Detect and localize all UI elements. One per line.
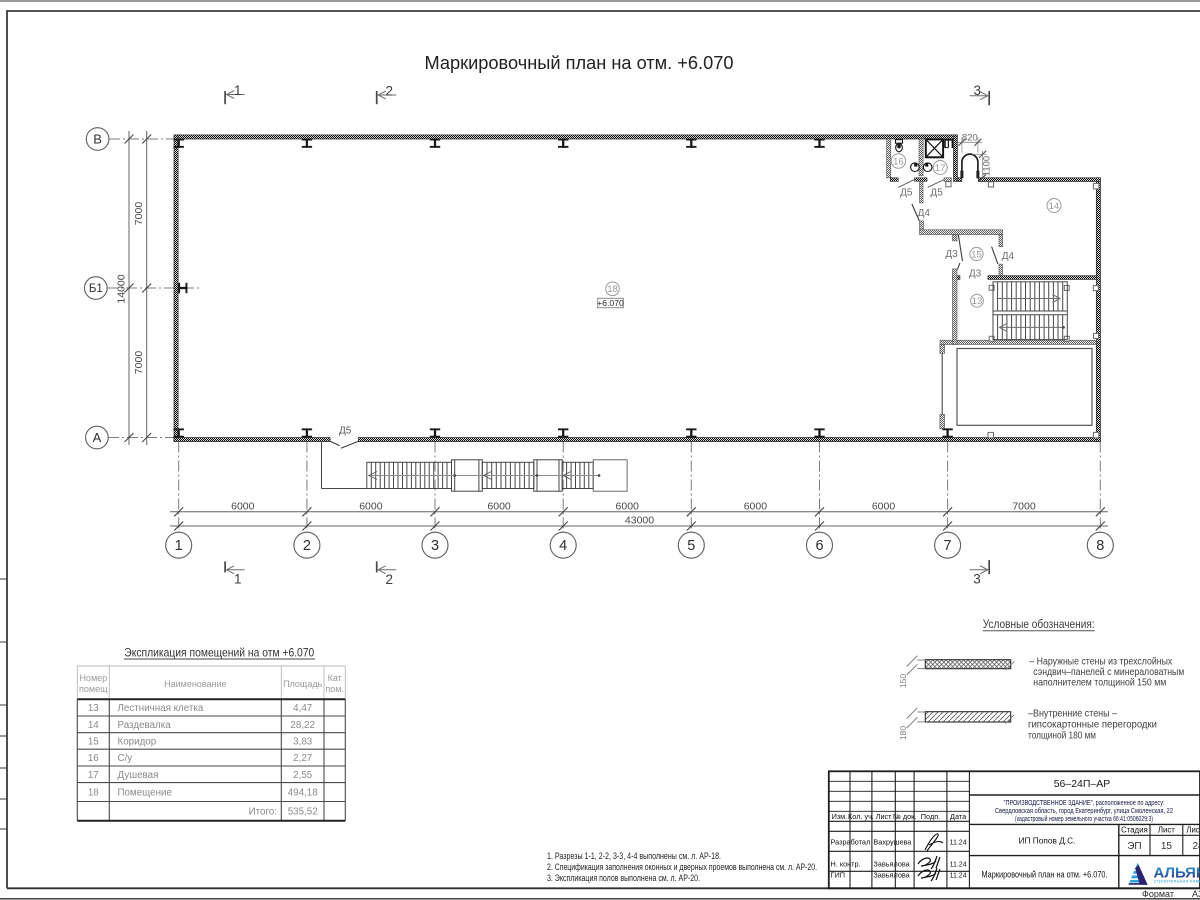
svg-text:Д4: Д4 — [918, 208, 931, 219]
svg-text:Условные обозначения:: Условные обозначения: — [983, 617, 1095, 631]
svg-text:7: 7 — [944, 538, 952, 554]
svg-text:7000: 7000 — [1012, 500, 1036, 512]
svg-text:(кадастровый номер земельного: (кадастровый номер земельного участка 66… — [1015, 815, 1153, 823]
svg-text:15: 15 — [88, 737, 99, 748]
svg-text:Душевая: Душевая — [118, 770, 159, 781]
svg-text:Дата: Дата — [950, 812, 967, 821]
svg-text:8: 8 — [1096, 538, 1104, 554]
svg-text:Итого:: Итого: — [249, 807, 277, 818]
svg-text:Д4: Д4 — [1002, 251, 1015, 262]
svg-text:16: 16 — [893, 156, 904, 167]
svg-text:Вахрушева: Вахрушева — [873, 838, 912, 847]
svg-text:3: 3 — [973, 572, 981, 587]
svg-text:7000: 7000 — [133, 202, 145, 226]
svg-text:помещ: помещ — [79, 684, 108, 694]
svg-text:В: В — [93, 132, 102, 147]
svg-text:13: 13 — [88, 703, 99, 714]
svg-text:толщиной 180 мм: толщиной 180 мм — [1028, 729, 1096, 741]
svg-text:16: 16 — [88, 753, 99, 764]
svg-text:6000: 6000 — [744, 500, 768, 512]
svg-text:6000: 6000 — [231, 500, 255, 512]
svg-text:17: 17 — [935, 163, 946, 174]
svg-text:7000: 7000 — [133, 351, 145, 375]
svg-text:Коридор: Коридор — [118, 737, 157, 748]
svg-text:2. Спецификация заполнения око: 2. Спецификация заполнения оконных и две… — [547, 862, 817, 872]
svg-text:Раздевалка: Раздевалка — [118, 720, 172, 731]
svg-text:+6.070: +6.070 — [597, 298, 624, 308]
svg-text:"ПРОИЗВОДСТВЕННОЕ ЗДАНИЕ", рас: "ПРОИЗВОДСТВЕННОЕ ЗДАНИЕ", расположенное… — [1004, 800, 1165, 807]
svg-text:Маркировочный план на отм. +6.: Маркировочный план на отм. +6.070 — [425, 52, 734, 73]
svg-text:15: 15 — [971, 249, 982, 260]
svg-text:Д5: Д5 — [900, 188, 913, 199]
svg-text:Д3: Д3 — [969, 269, 982, 280]
svg-text:3: 3 — [973, 83, 981, 98]
svg-text:494,18: 494,18 — [288, 788, 319, 799]
svg-text:6000: 6000 — [616, 500, 640, 512]
svg-text:6000: 6000 — [359, 500, 383, 512]
svg-text:11.24: 11.24 — [950, 873, 967, 880]
svg-text:6000: 6000 — [487, 500, 511, 512]
svg-text:1: 1 — [234, 572, 242, 587]
svg-text:Лист: Лист — [1158, 826, 1175, 835]
svg-text:56–24П–АР: 56–24П–АР — [1054, 778, 1111, 790]
svg-text:3: 3 — [431, 538, 439, 554]
svg-text:строительная компания: строительная компания — [1154, 880, 1200, 885]
svg-text:Формат: Формат — [1142, 889, 1174, 899]
svg-text:11.24: 11.24 — [950, 862, 967, 869]
svg-text:ГИП: ГИП — [831, 871, 845, 880]
svg-text:Свердловская область, город Ек: Свердловская область, город Екатеринбург… — [995, 807, 1173, 815]
svg-text:2,55: 2,55 — [293, 770, 313, 781]
svg-text:2: 2 — [303, 538, 311, 554]
svg-text:Завьялова: Завьялова — [873, 860, 910, 869]
svg-text:180: 180 — [898, 726, 908, 740]
svg-text:1. Разрезы 1-1, 2-2, 3-3, 4-4: 1. Разрезы 1-1, 2-2, 3-3, 4-4 выполнены … — [547, 851, 721, 861]
svg-text:Д5: Д5 — [339, 426, 352, 437]
svg-text:Д3: Д3 — [945, 249, 958, 260]
svg-text:ЭП: ЭП — [1127, 841, 1141, 852]
svg-text:17: 17 — [88, 770, 99, 781]
svg-text:Наименование: Наименование — [164, 679, 226, 689]
svg-text:Кат: Кат — [328, 673, 342, 683]
svg-text:А3: А3 — [1192, 889, 1200, 899]
svg-text:3,83: 3,83 — [293, 737, 313, 748]
svg-text:820: 820 — [962, 133, 978, 144]
svg-text:Разработал: Разработал — [831, 838, 871, 847]
svg-text:Завьялова: Завьялова — [873, 871, 910, 880]
svg-text:43000: 43000 — [625, 515, 654, 527]
svg-text:14: 14 — [1049, 201, 1060, 212]
svg-text:6: 6 — [815, 538, 823, 554]
svg-text:1100: 1100 — [981, 156, 992, 176]
svg-text:Д5: Д5 — [930, 188, 943, 199]
svg-text:18: 18 — [607, 284, 618, 295]
svg-text:5: 5 — [687, 538, 695, 554]
svg-text:18: 18 — [88, 788, 99, 799]
svg-text:28,22: 28,22 — [290, 720, 315, 731]
svg-text:13: 13 — [972, 296, 983, 307]
svg-text:3. Экспликация полов выполнена: 3. Экспликация полов выполнена см. л. АР… — [547, 873, 700, 883]
svg-text:С/у: С/у — [118, 753, 133, 764]
svg-text:№ док.: № док. — [893, 812, 916, 821]
svg-text:11.24: 11.24 — [950, 840, 967, 847]
svg-text:А: А — [93, 430, 102, 445]
svg-text:Номер: Номер — [79, 673, 107, 683]
svg-text:2: 2 — [386, 572, 394, 587]
svg-text:535,52: 535,52 — [288, 807, 318, 818]
svg-text:наполнителем толщиной 150 мм: наполнителем толщиной 150 мм — [1033, 676, 1166, 688]
svg-text:4: 4 — [559, 538, 567, 554]
svg-text:Помещение: Помещение — [118, 788, 173, 799]
svg-text:2: 2 — [386, 84, 394, 99]
svg-text:ИП Попов Д.С.: ИП Попов Д.С. — [1019, 836, 1076, 846]
svg-text:Б1: Б1 — [89, 283, 103, 295]
svg-text:Маркировочный план на отм. +6.: Маркировочный план на отм. +6.070. — [982, 870, 1108, 881]
svg-text:1: 1 — [175, 538, 183, 554]
svg-text:Стадия: Стадия — [1121, 826, 1148, 835]
svg-text:6000: 6000 — [872, 500, 896, 512]
svg-text:Изм.: Изм. — [832, 812, 848, 821]
svg-text:Н. контр.: Н. контр. — [831, 860, 861, 869]
svg-text:14000: 14000 — [115, 274, 127, 303]
svg-text:14: 14 — [88, 720, 99, 731]
svg-text:Подп.: Подп. — [921, 812, 940, 821]
svg-text:Экспликация помещений на отм +: Экспликация помещений на отм +6.070 — [124, 645, 314, 659]
svg-text:Лист: Лист — [876, 812, 893, 821]
svg-text:24: 24 — [1192, 841, 1200, 852]
svg-text:Площадь: Площадь — [283, 679, 322, 689]
svg-text:15: 15 — [1161, 841, 1173, 852]
svg-text:2,27: 2,27 — [293, 753, 312, 764]
svg-text:4,47: 4,47 — [293, 703, 312, 714]
svg-text:1: 1 — [234, 83, 242, 98]
svg-text:пом.: пом. — [325, 684, 344, 694]
svg-text:150: 150 — [898, 674, 908, 688]
svg-text:Кол. уч.: Кол. уч. — [848, 812, 874, 821]
svg-text:Листов: Листов — [1186, 826, 1200, 835]
svg-text:Лестничная клетка: Лестничная клетка — [118, 703, 204, 714]
